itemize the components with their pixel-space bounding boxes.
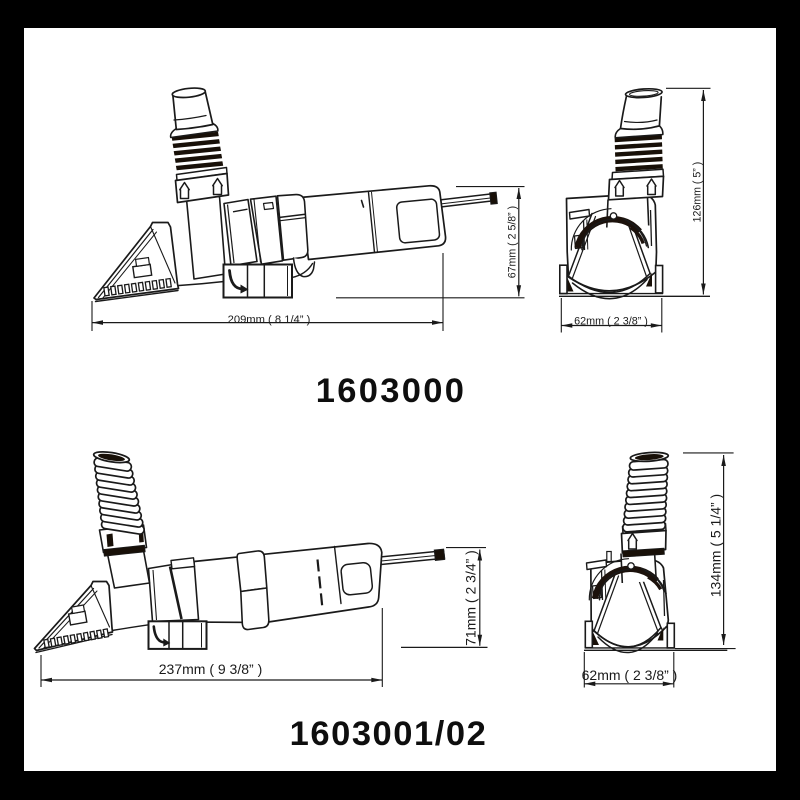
svg-text:126mm ( 5” ): 126mm ( 5” ) xyxy=(692,162,704,223)
svg-text:62mm ( 2 3/8” ): 62mm ( 2 3/8” ) xyxy=(582,667,678,683)
svg-text:209mm ( 8 1/4” ): 209mm ( 8 1/4” ) xyxy=(228,314,311,326)
svg-text:1603000: 1603000 xyxy=(316,372,466,410)
svg-text:237mm ( 9 3/8” ): 237mm ( 9 3/8” ) xyxy=(159,661,262,677)
svg-text:67mm ( 2 5/8” ): 67mm ( 2 5/8” ) xyxy=(506,206,518,278)
svg-text:71mm ( 2 3/4” ): 71mm ( 2 3/4” ) xyxy=(463,550,479,646)
svg-text:134mm ( 5 1/4” ): 134mm ( 5 1/4” ) xyxy=(708,494,724,597)
svg-text:62mm ( 2 3/8” ): 62mm ( 2 3/8” ) xyxy=(574,315,648,327)
svg-text:1603001/02: 1603001/02 xyxy=(290,715,488,753)
